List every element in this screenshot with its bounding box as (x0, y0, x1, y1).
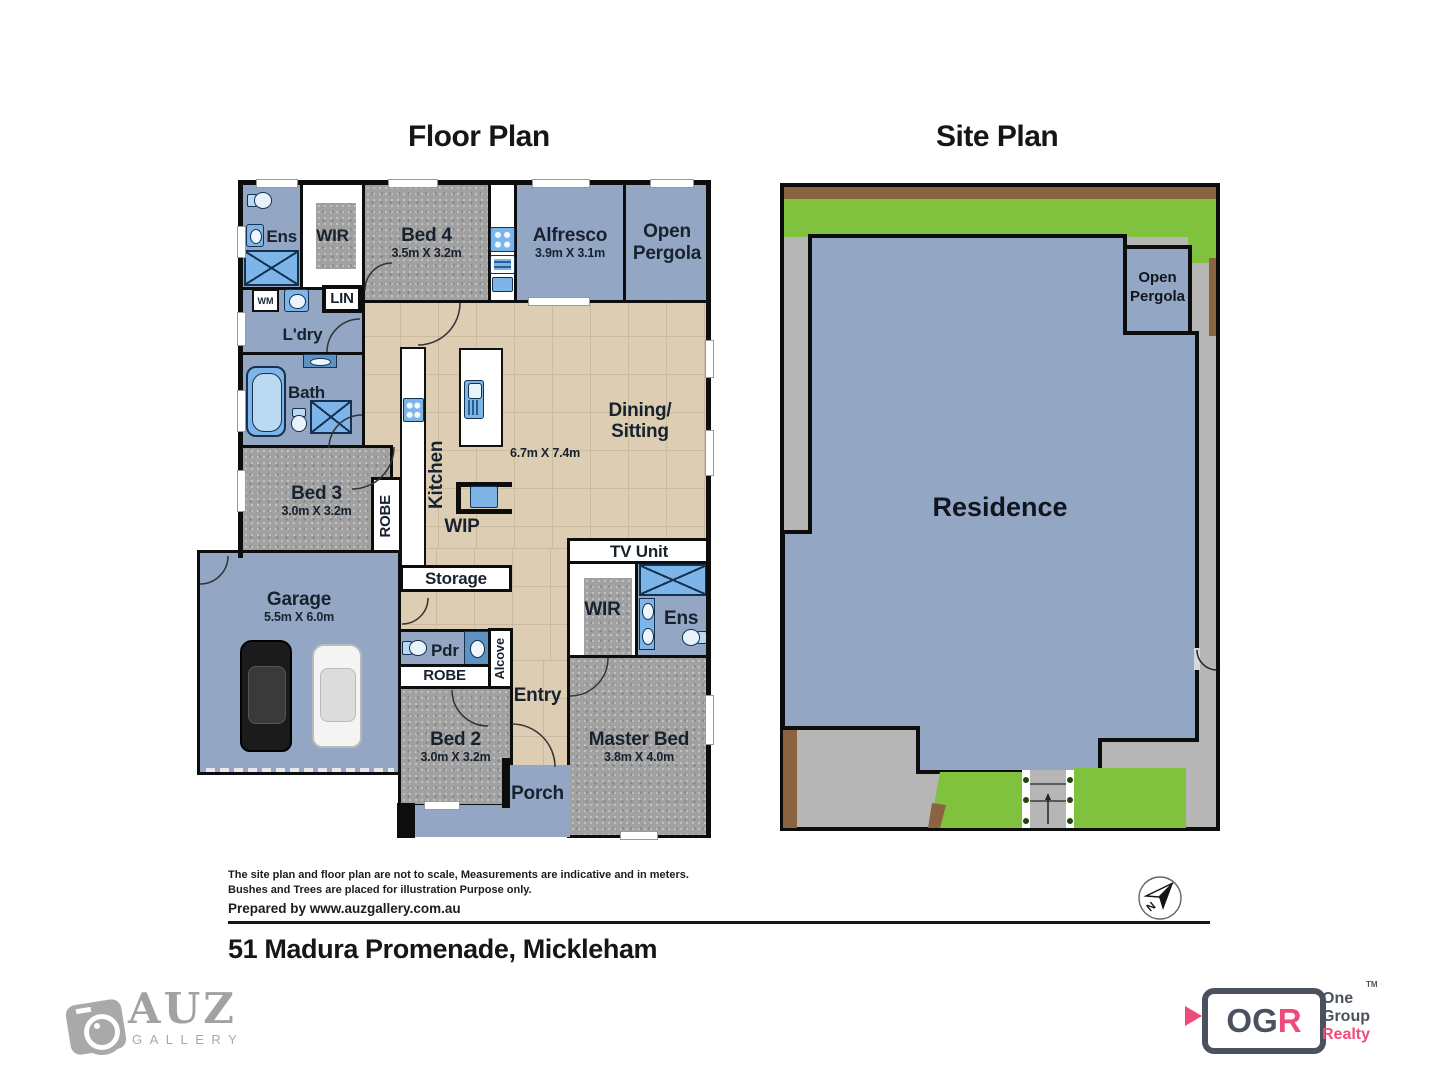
auz-wordmark: AUZ (128, 984, 237, 1033)
north-arrow-icon: N (1136, 874, 1184, 922)
door-arc (329, 415, 362, 448)
rear-fence (784, 187, 1216, 199)
door-arc (512, 724, 555, 767)
ogr-logo: OGR One Group Realty TM (1183, 976, 1383, 1056)
door-arc (418, 303, 460, 345)
ogr-badge: OGR (1202, 988, 1326, 1054)
door-arc (452, 690, 488, 726)
door-arcs-overlay (0, 0, 1439, 1080)
front-lawn-left (930, 772, 1022, 828)
prepared-by: Prepared by www.auzgallery.com.au (228, 901, 461, 916)
site-pergola-label: Open Pergola (1120, 268, 1195, 306)
rear-lawn (784, 199, 1216, 237)
divider-rule (228, 921, 1210, 924)
door-arc (327, 319, 360, 352)
disclaimer-line-2: Bushes and Trees are placed for illustra… (228, 884, 532, 896)
door-arc (402, 598, 428, 624)
property-address: 51 Madura Promenade, Mickleham (228, 934, 657, 965)
door-arc (570, 658, 608, 696)
side-fence (1209, 258, 1216, 336)
ogr-name-lines: One Group Realty (1322, 990, 1370, 1044)
disclaimer-line-1: The site plan and floor plan are not to … (228, 869, 689, 881)
residence-label: Residence (920, 492, 1080, 523)
front-fence-left (783, 730, 797, 828)
camera-lens (84, 1014, 120, 1050)
auz-sub-wordmark: GALLERY (132, 1032, 244, 1047)
ogr-wordmark: OGR (1226, 1002, 1301, 1040)
auz-logo: AUZ GALLERY (62, 988, 232, 1068)
play-icon (1185, 1006, 1202, 1026)
door-arc (352, 447, 394, 489)
door-arc (365, 263, 392, 290)
door-arc (200, 556, 228, 584)
trademark-symbol: TM (1366, 980, 1378, 989)
front-lawn-right (1074, 768, 1186, 828)
plan-sheet: Floor Plan Site Plan Ens WIR Bed 4 3.5m … (0, 0, 1439, 1080)
